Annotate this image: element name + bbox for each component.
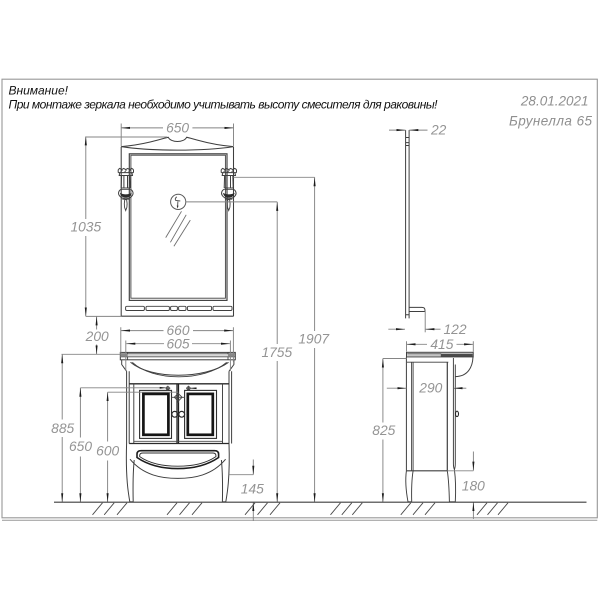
svg-text:145: 145 [241,482,264,497]
svg-text:При монтаже зеркала необходимо: При монтаже зеркала необходимо учитывать… [9,98,439,112]
svg-text:28.01.2021: 28.01.2021 [520,94,589,109]
svg-text:180: 180 [462,478,485,493]
svg-text:122: 122 [444,322,467,337]
svg-text:825: 825 [372,423,395,438]
svg-text:605: 605 [166,336,189,351]
svg-text:650: 650 [166,121,189,136]
svg-text:415: 415 [430,337,453,352]
svg-text:Брунелла 65: Брунелла 65 [509,114,593,129]
svg-text:1755: 1755 [261,345,292,360]
svg-text:650: 650 [69,439,92,454]
svg-text:Внимание!: Внимание! [9,84,69,98]
svg-text:1035: 1035 [70,220,101,235]
svg-text:22: 22 [430,122,447,137]
svg-text:290: 290 [418,381,442,396]
svg-text:885: 885 [51,421,74,436]
svg-text:600: 600 [96,444,119,459]
svg-text:1907: 1907 [298,332,330,347]
svg-text:200: 200 [85,329,109,344]
